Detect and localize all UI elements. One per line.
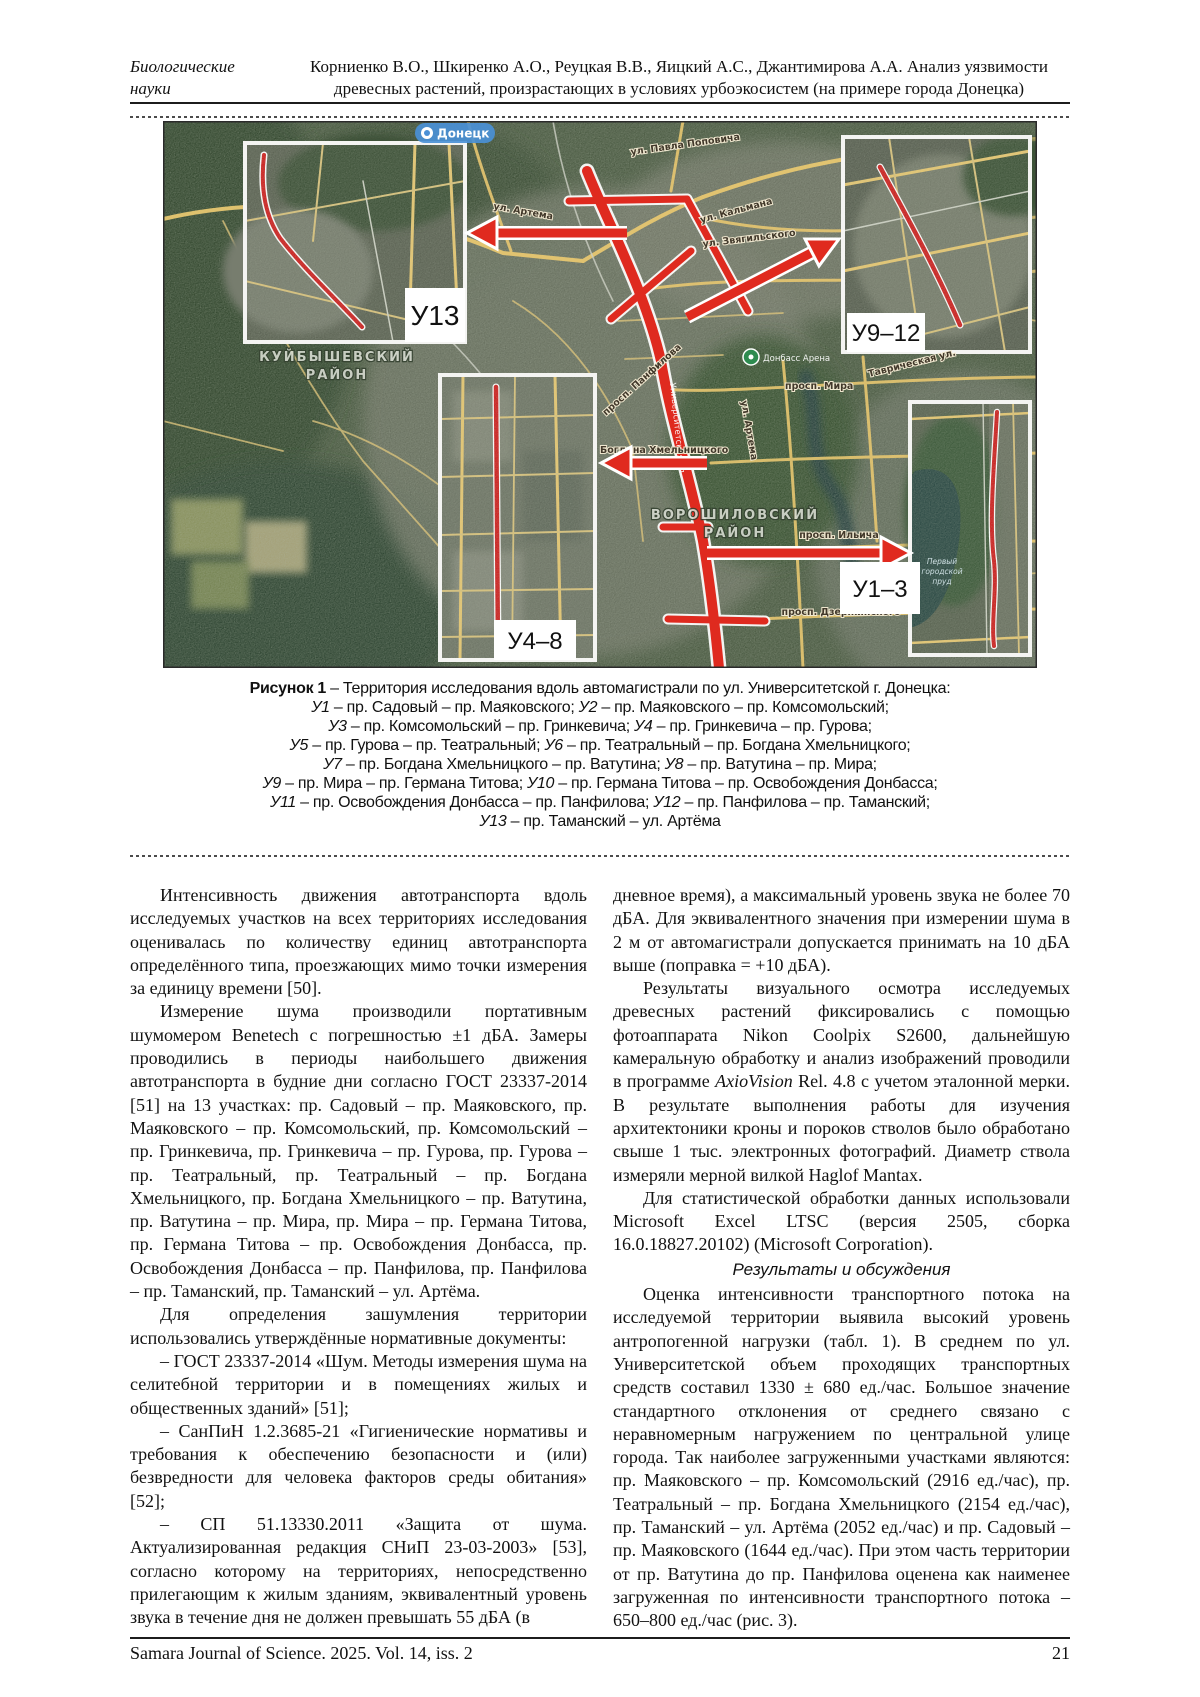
- figure-caption-line: У13 – пр. Таманский – ул. Артёма: [130, 812, 1070, 831]
- inset-u1-3: Первый городской пруд: [905, 402, 1030, 655]
- footer-page-number: 21: [1052, 1643, 1070, 1664]
- city-label: Донецк: [437, 127, 489, 141]
- page-footer: Samara Journal of Science. 2025. Vol. 14…: [130, 1643, 1070, 1664]
- inset-u4-8: [440, 375, 595, 660]
- section-heading: Результаты и обсуждения: [613, 1257, 1070, 1283]
- inset-label-u9-12: У9–12: [852, 320, 921, 347]
- section-title-line2: науки: [130, 78, 288, 100]
- district-label: РАЙОН: [704, 525, 766, 541]
- paragraph: – СанПиН 1.2.3685-21 «Гигиенические норм…: [130, 1420, 587, 1513]
- section-title-line1: Биологические: [130, 56, 288, 78]
- journal-page: Биологические науки Корниенко В.О., Шкир…: [0, 0, 1200, 1697]
- district-label: ВОРОШИЛОВСКИЙ: [651, 507, 819, 523]
- inset-label-u13: У13: [411, 300, 460, 331]
- footer-journal: Samara Journal of Science. 2025. Vol. 14…: [130, 1643, 473, 1664]
- figure-map: Университетская ул.: [163, 121, 1037, 668]
- body-right-column: дневное время), а максимальный уровень з…: [613, 884, 1070, 1633]
- section-title: Биологические науки: [130, 56, 288, 100]
- paragraph: дневное время), а максимальный уровень з…: [613, 884, 1070, 977]
- figure-caption-line: Рисунок 1 – Территория исследования вдол…: [130, 679, 1070, 698]
- city-marker-donetsk: Донецк: [415, 123, 495, 143]
- satellite-map: Университетская ул.: [163, 121, 1037, 668]
- street-label: просп. Ильича: [799, 530, 879, 541]
- figure-caption-line: У3 – пр. Комсомольский – пр. Гринкевича;…: [130, 717, 1070, 736]
- inset-label-u1-3: У1–3: [852, 576, 907, 603]
- figure-caption-line: У5 – пр. Гурова – пр. Театральный; У6 – …: [130, 736, 1070, 755]
- body-left-column: Интенсивность движения автотранспорта вд…: [130, 884, 587, 1630]
- paragraph: Результаты визуального осмотра исследуем…: [613, 977, 1070, 1187]
- running-head-line1: Корниенко В.О., Шкиренко А.О., Реуцкая В…: [288, 56, 1070, 78]
- paragraph: – СП 51.13330.2011 «Защита от шума. Акту…: [130, 1513, 587, 1629]
- figure-caption: Рисунок 1 – Территория исследования вдол…: [130, 679, 1070, 831]
- running-head: Корниенко В.О., Шкиренко А.О., Реуцкая В…: [288, 56, 1070, 100]
- paragraph: Измерение шума производили портативным ш…: [130, 1000, 587, 1303]
- paragraph: Для статистической обработки данных испо…: [613, 1187, 1070, 1257]
- street-label: просп. Мира: [785, 381, 853, 392]
- paragraph: Интенсивность движения автотранспорта вд…: [130, 884, 587, 1000]
- inset-label-u4-8: У4–8: [507, 628, 562, 655]
- street-label: Донбасс Арена: [763, 354, 830, 364]
- paragraph: Для определения зашумления территории ис…: [130, 1303, 587, 1350]
- figure-divider-top: [130, 116, 1070, 118]
- header-rule: [130, 102, 1070, 104]
- figure-caption-line: У1 – пр. Садовый – пр. Маяковского; У2 –…: [130, 698, 1070, 717]
- figure-caption-line: У7 – пр. Богдана Хмельницкого – пр. Вату…: [130, 755, 1070, 774]
- paragraph: Оценка интенсивности транспортного поток…: [613, 1283, 1070, 1632]
- footer-rule: [130, 1637, 1070, 1639]
- paragraph: – ГОСТ 23337-2014 «Шум. Методы измерения…: [130, 1350, 587, 1420]
- district-label: КУЙБЫШЕВСКИЙ: [259, 349, 415, 365]
- figure-caption-line: У9 – пр. Мира – пр. Германа Титова; У10 …: [130, 774, 1070, 793]
- district-label: РАЙОН: [306, 367, 368, 383]
- running-head-line2: древесных растений, произрастающих в усл…: [288, 78, 1070, 100]
- page-header: Биологические науки Корниенко В.О., Шкир…: [130, 56, 1070, 100]
- figure-divider-bottom: [130, 855, 1070, 857]
- figure-caption-line: У11 – пр. Освобождения Донбасса – пр. Па…: [130, 793, 1070, 812]
